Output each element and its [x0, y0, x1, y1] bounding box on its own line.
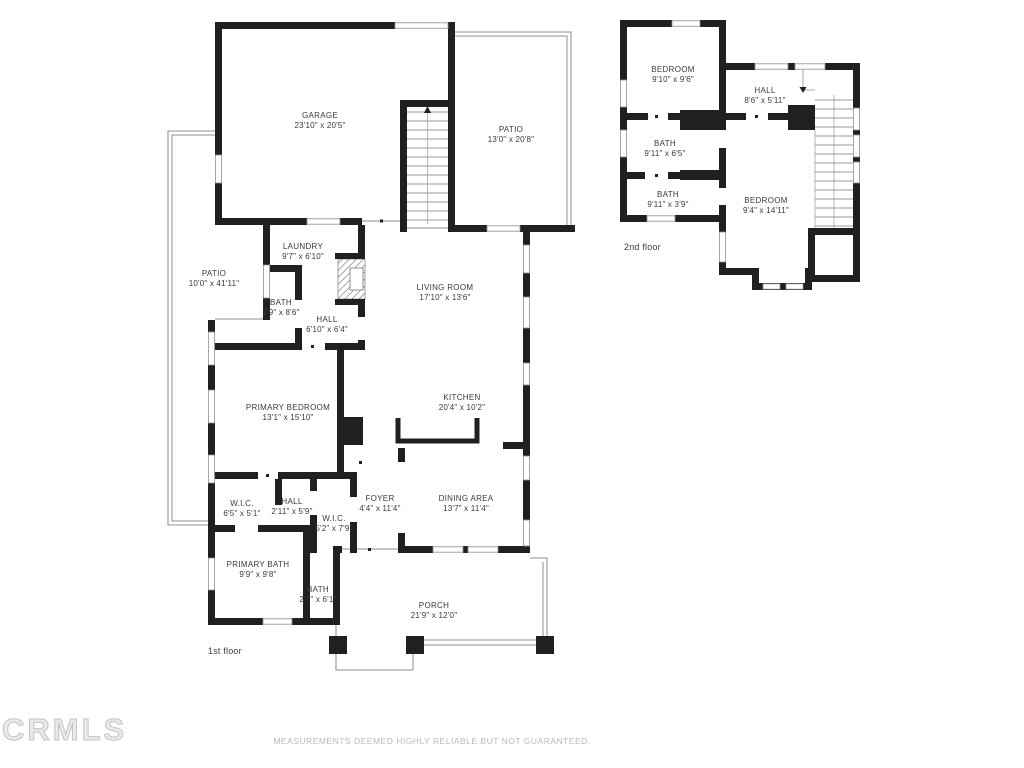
first-floor-label: 1st floor — [208, 646, 242, 656]
fireplace-chimney — [338, 259, 365, 299]
kitchen-counter — [398, 418, 477, 441]
first-floor-windows — [208, 23, 529, 624]
stairs-first-floor — [407, 106, 448, 224]
first-floor-walls — [208, 22, 575, 654]
floor-plan-drawing — [0, 0, 1024, 768]
stairs-up-arrow-icon — [424, 106, 431, 113]
floor-plan-page: GARAGE 23'10" x 20'5" PATIO 13'0" x 20'8… — [0, 0, 1024, 768]
first-floor-plan — [168, 22, 575, 670]
measurements-disclaimer: MEASUREMENTS DEEMED HIGHLY RELIABLE BUT … — [273, 736, 590, 746]
crmls-watermark-logo: CRMLS — [2, 712, 127, 748]
stairs-second-floor — [800, 66, 854, 232]
second-floor-label: 2nd floor — [624, 242, 661, 252]
patio-porch-outlines — [168, 32, 571, 670]
